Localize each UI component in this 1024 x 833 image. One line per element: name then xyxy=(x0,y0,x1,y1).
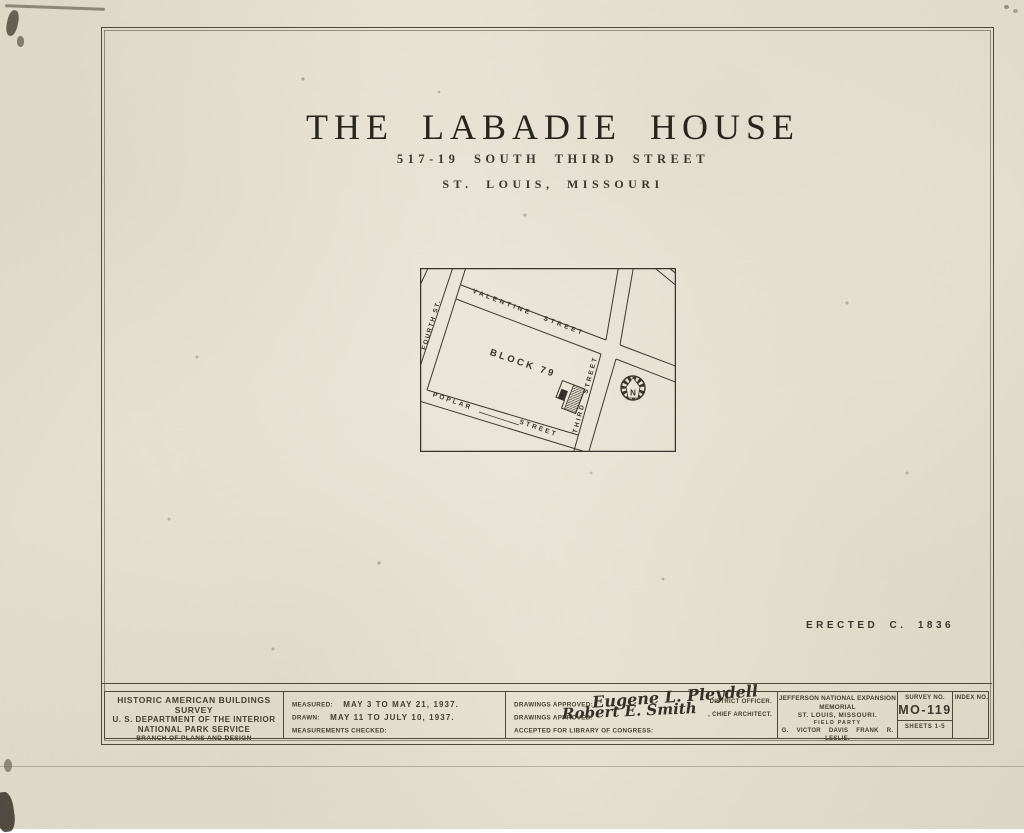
street-label-valentine: VALENTINE STREET xyxy=(471,288,585,337)
survey-number: MO-119 xyxy=(898,701,952,717)
title-block-survey-cell: SURVEY NO. MO-119 SHEETS 1-5 xyxy=(898,692,953,738)
measurements-checked-label: MEASUREMENTS CHECKED: xyxy=(292,727,387,734)
sheet-paper: THE LABADIE HOUSE 517-19 SOUTH THIRD STR… xyxy=(0,0,1024,829)
scan-artifact xyxy=(0,791,17,833)
title-block-top-rule xyxy=(101,683,992,684)
drawn-label: DRAWN: xyxy=(292,714,320,721)
street-label-fourth: FOURTH ST. xyxy=(421,298,443,350)
title-block-agency-cell: HISTORIC AMERICAN BUILDINGS SURVEY U. S.… xyxy=(105,692,284,738)
project-line-4: G. VICTOR DAVIS FRANK R. LESLIE. xyxy=(778,727,897,743)
scan-artifact xyxy=(17,36,24,47)
agency-line-3: NATIONAL PARK SERVICE xyxy=(105,725,283,735)
scan-artifact xyxy=(4,9,20,37)
north-arrow-label: N xyxy=(630,389,636,398)
page-subtitle-address: 517-19 SOUTH THIRD STREET xyxy=(397,152,709,167)
map-border xyxy=(421,269,676,452)
measured-label: MEASURED: xyxy=(292,701,333,708)
north-arrow-icon: N xyxy=(621,376,645,400)
block-label: BLOCK 79 xyxy=(488,347,557,380)
measured-value: MAY 3 TO MAY 21, 1937. xyxy=(343,700,459,709)
scan-artifact xyxy=(5,4,105,10)
title-block-dates-cell: MEASURED: MAY 3 TO MAY 21, 1937. DRAWN: … xyxy=(284,692,506,738)
page-title: THE LABADIE HOUSE xyxy=(306,106,800,148)
street-lines xyxy=(420,268,676,452)
title-block-project-cell: JEFFERSON NATIONAL EXPANSION MEMORIAL ST… xyxy=(778,692,898,738)
title-block-index-cell: INDEX NO. xyxy=(953,692,990,738)
project-line-3: FIELD PARTY xyxy=(778,720,897,727)
page-location: ST. LOUIS, MISSOURI xyxy=(442,177,663,192)
vicinity-map-drawing: N VALENTINE STREET FOURTH ST. THIRD STRE… xyxy=(420,268,676,452)
scan-artifact xyxy=(1004,5,1009,9)
vicinity-map: N VALENTINE STREET FOURTH ST. THIRD STRE… xyxy=(420,268,676,452)
index-no-label: INDEX NO. xyxy=(953,692,990,701)
project-line-1: JEFFERSON NATIONAL EXPANSION MEMORIAL xyxy=(778,695,897,712)
accepted-library-label: ACCEPTED FOR LIBRARY OF CONGRESS: xyxy=(514,727,653,734)
survey-no-label: SURVEY NO. xyxy=(898,692,952,701)
drawn-value: MAY 11 TO JULY 10, 1937. xyxy=(330,713,455,722)
paper-crease-line xyxy=(0,766,1024,767)
street-label-poplar-street: STREET xyxy=(518,419,558,439)
sheets-count: SHEETS 1-5 xyxy=(898,720,952,730)
paper-speckles xyxy=(0,0,2,2)
project-line-2: ST. LOUIS, MISSOURI. xyxy=(778,712,897,720)
title-block: HISTORIC AMERICAN BUILDINGS SURVEY U. S.… xyxy=(104,691,989,739)
agency-line-4: BRANCH OF PLANS AND DESIGN xyxy=(105,735,283,743)
erected-note: ERECTED C. 1836 xyxy=(806,620,954,631)
chief-architect-title: , CHIEF ARCHITECT. xyxy=(708,712,772,718)
agency-line-1: HISTORIC AMERICAN BUILDINGS SURVEY xyxy=(105,695,283,715)
title-block-approvals-cell: DRAWINGS APPROVED: DISTRICT OFFICER. DRA… xyxy=(506,692,778,738)
agency-line-2: U. S. DEPARTMENT OF THE INTERIOR xyxy=(105,715,283,725)
